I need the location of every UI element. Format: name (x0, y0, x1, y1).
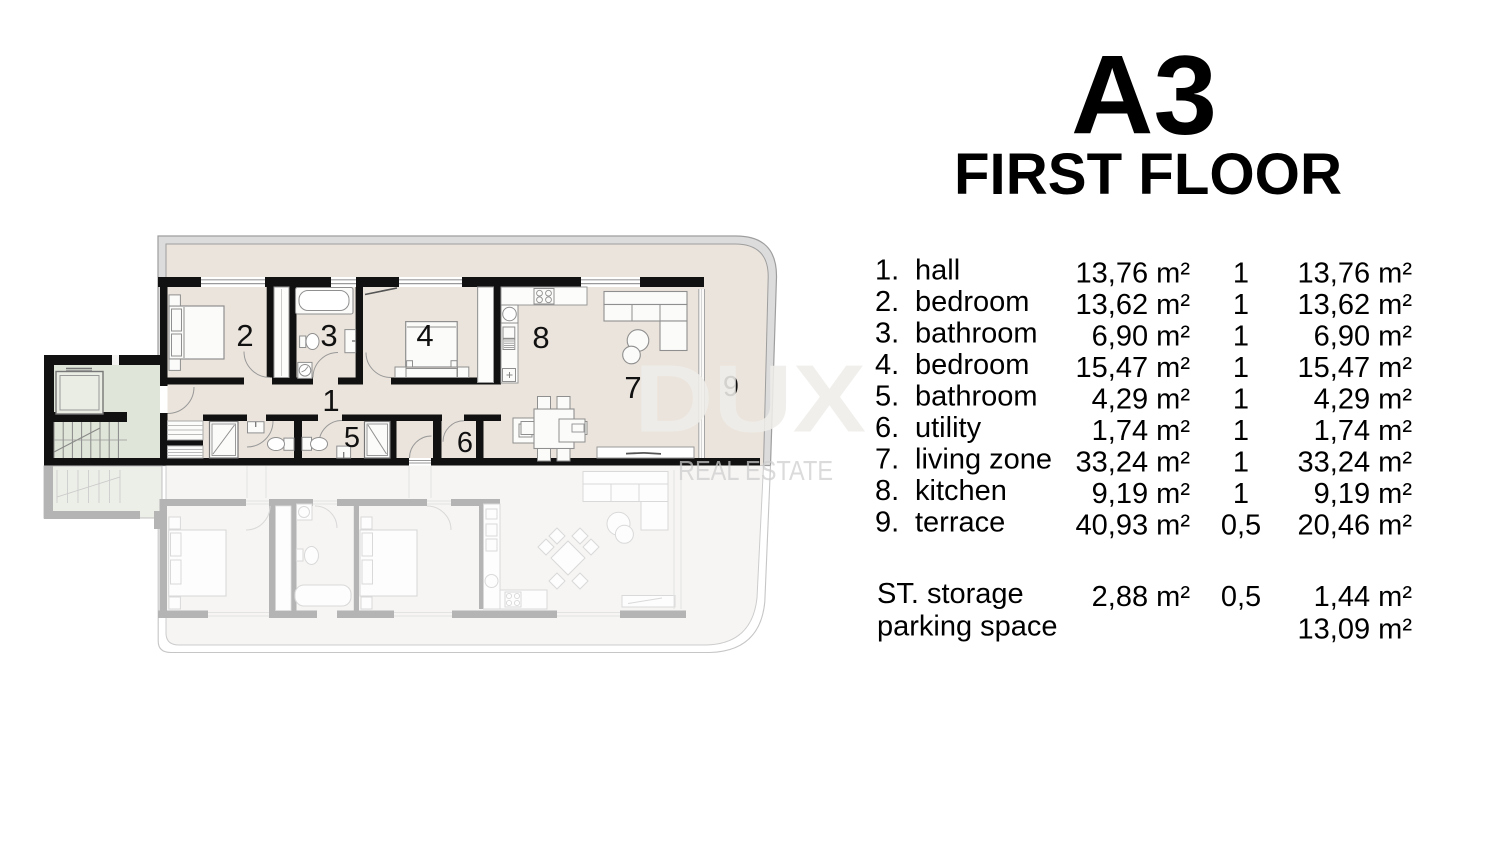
svg-text:5.: 5. (875, 381, 899, 413)
svg-text:1,74 m²: 1,74 m² (1314, 415, 1413, 447)
svg-text:4,29 m²: 4,29 m² (1314, 384, 1413, 416)
svg-text:3.: 3. (875, 318, 899, 350)
svg-text:15,47 m²: 15,47 m² (1298, 352, 1413, 384)
svg-text:13,62 m²: 13,62 m² (1076, 289, 1191, 321)
svg-text:33,24 m²: 33,24 m² (1076, 447, 1191, 479)
svg-text:2,88 m²: 2,88 m² (1092, 581, 1191, 613)
svg-text:1: 1 (1233, 321, 1249, 353)
svg-text:2.: 2. (875, 286, 899, 318)
svg-text:9,19 m²: 9,19 m² (1092, 478, 1191, 510)
svg-text:6: 6 (457, 427, 473, 459)
svg-text:13,62 m²: 13,62 m² (1298, 289, 1413, 321)
svg-text:hall: hall (915, 255, 960, 287)
svg-text:13,09 m²: 13,09 m² (1298, 614, 1413, 646)
svg-text:13,76 m²: 13,76 m² (1076, 258, 1191, 290)
svg-text:1: 1 (1233, 415, 1249, 447)
svg-text:1: 1 (1233, 352, 1249, 384)
svg-text:4: 4 (416, 318, 433, 353)
svg-text:13,76 m²: 13,76 m² (1298, 258, 1413, 290)
svg-text:9,19 m²: 9,19 m² (1314, 478, 1413, 510)
svg-text:6,90 m²: 6,90 m² (1092, 321, 1191, 353)
svg-text:1: 1 (1233, 447, 1249, 479)
svg-text:kitchen: kitchen (915, 475, 1007, 507)
svg-text:bedroom: bedroom (915, 349, 1029, 381)
svg-text:0,5: 0,5 (1221, 510, 1261, 542)
svg-text:1.: 1. (875, 255, 899, 287)
svg-text:2: 2 (236, 318, 253, 353)
svg-text:utility: utility (915, 412, 982, 444)
svg-text:1: 1 (1233, 478, 1249, 510)
svg-text:bedroom: bedroom (915, 286, 1029, 318)
svg-text:1: 1 (1233, 384, 1249, 416)
svg-text:33,24 m²: 33,24 m² (1298, 447, 1413, 479)
svg-text:20,46 m²: 20,46 m² (1298, 510, 1413, 542)
svg-text:1: 1 (1233, 258, 1249, 290)
svg-text:parking space: parking space (877, 611, 1058, 643)
svg-text:9.: 9. (875, 507, 899, 539)
svg-text:7.: 7. (875, 444, 899, 476)
svg-text:40,93 m²: 40,93 m² (1076, 510, 1191, 542)
svg-text:terrace: terrace (915, 507, 1005, 539)
svg-text:0,5: 0,5 (1221, 581, 1261, 613)
svg-text:6.: 6. (875, 412, 899, 444)
svg-text:living zone: living zone (915, 444, 1052, 476)
svg-text:3: 3 (320, 318, 337, 353)
svg-text:8: 8 (532, 320, 549, 355)
svg-text:1: 1 (1233, 289, 1249, 321)
svg-text:ST. storage: ST. storage (877, 578, 1024, 610)
svg-text:1,74 m²: 1,74 m² (1092, 415, 1191, 447)
svg-text:DUX: DUX (634, 346, 866, 453)
svg-text:1,44 m²: 1,44 m² (1314, 581, 1413, 613)
svg-text:15,47 m²: 15,47 m² (1076, 352, 1191, 384)
svg-text:8.: 8. (875, 475, 899, 507)
svg-text:4.: 4. (875, 349, 899, 381)
svg-text:REAL ESTATE: REAL ESTATE (678, 455, 833, 486)
svg-text:4,29 m²: 4,29 m² (1092, 384, 1191, 416)
svg-text:bathroom: bathroom (915, 318, 1038, 350)
svg-text:A3: A3 (1071, 33, 1217, 158)
svg-text:bathroom: bathroom (915, 381, 1038, 413)
svg-text:1: 1 (322, 383, 339, 418)
svg-text:5: 5 (344, 422, 360, 454)
svg-text:6,90 m²: 6,90 m² (1314, 321, 1413, 353)
svg-text:FIRST FLOOR: FIRST FLOOR (954, 142, 1342, 207)
